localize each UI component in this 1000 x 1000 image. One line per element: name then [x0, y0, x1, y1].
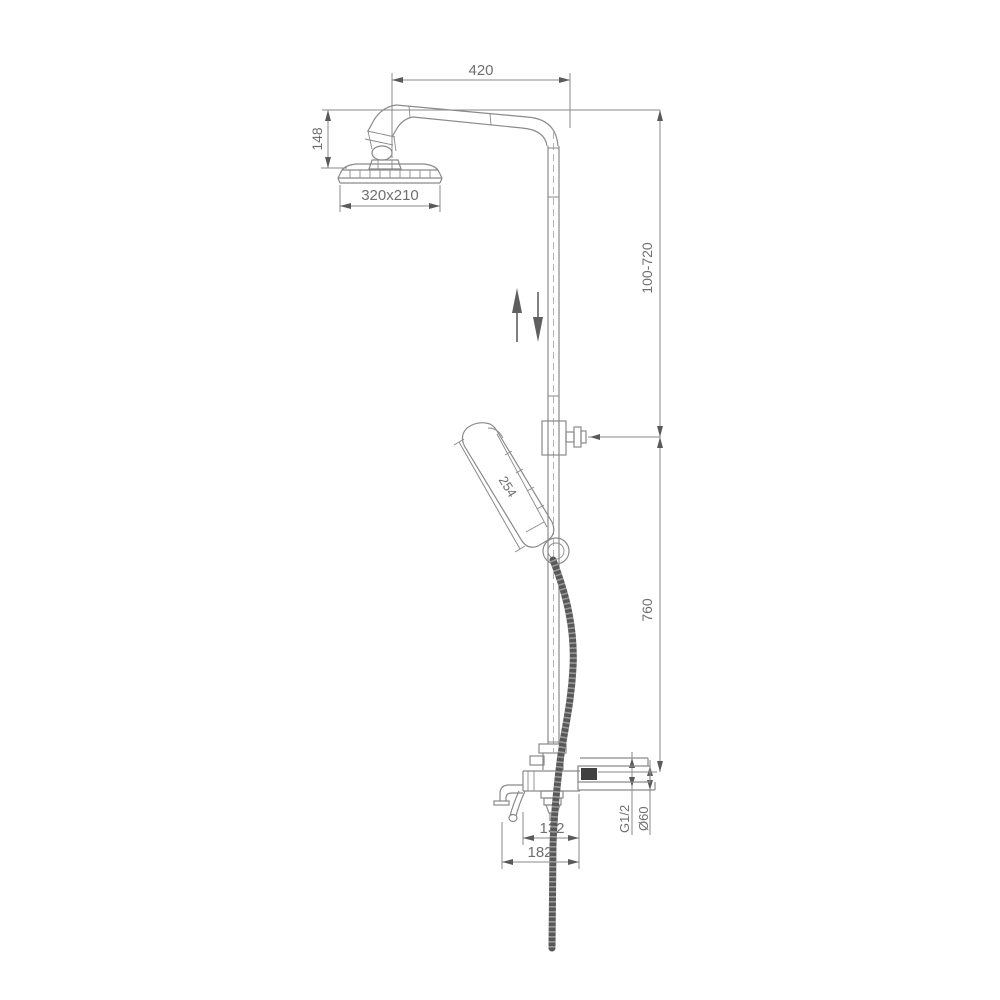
slider-knob-flange — [574, 427, 581, 447]
dim-420-label: 420 — [468, 62, 493, 79]
dim-head-size-label: 320x210 — [361, 187, 419, 204]
dim-range-label: 100-720 — [639, 242, 655, 294]
riser-pipe — [548, 132, 559, 752]
wall-plate-section-fill — [581, 768, 597, 780]
dim-head-size: 320x210 — [340, 187, 440, 209]
height-adjust-arrows — [512, 288, 543, 342]
dim-760-label: 760 — [639, 598, 655, 622]
diverter-knob — [530, 756, 544, 765]
bath-spout — [494, 785, 523, 805]
ball-joint-connector — [365, 131, 401, 169]
shower-arm — [368, 105, 558, 146]
dim-head-height: 148 — [309, 110, 331, 168]
dim-riser-height: 760 — [590, 434, 663, 772]
dim-adjustable-range: 100-720 — [639, 110, 663, 437]
technical-drawing-canvas: 420 148 320x210 100-720 760 G1/2 — [0, 0, 1000, 1000]
dim-g12-label: G1/2 — [617, 805, 632, 833]
wall-plate — [578, 758, 657, 790]
mixer-body — [523, 744, 580, 821]
dim-148-label: 148 — [309, 127, 325, 151]
overhead-shower-head — [338, 164, 442, 183]
dim-arm-projection: 420 — [392, 62, 570, 83]
slider-knob-stem — [566, 432, 574, 442]
dim-254-label: 254 — [496, 473, 520, 499]
slider-knob-cap — [581, 431, 586, 443]
dim-182-label: 182 — [527, 844, 552, 861]
dim-d60-label: Ø60 — [636, 806, 651, 831]
shower-system-drawing: 420 148 320x210 100-720 760 G1/2 — [0, 0, 1000, 1000]
dim-handset-length: 254 — [454, 439, 525, 552]
dim-spout-projection: 182 — [502, 844, 579, 865]
shower-hose — [552, 560, 573, 948]
